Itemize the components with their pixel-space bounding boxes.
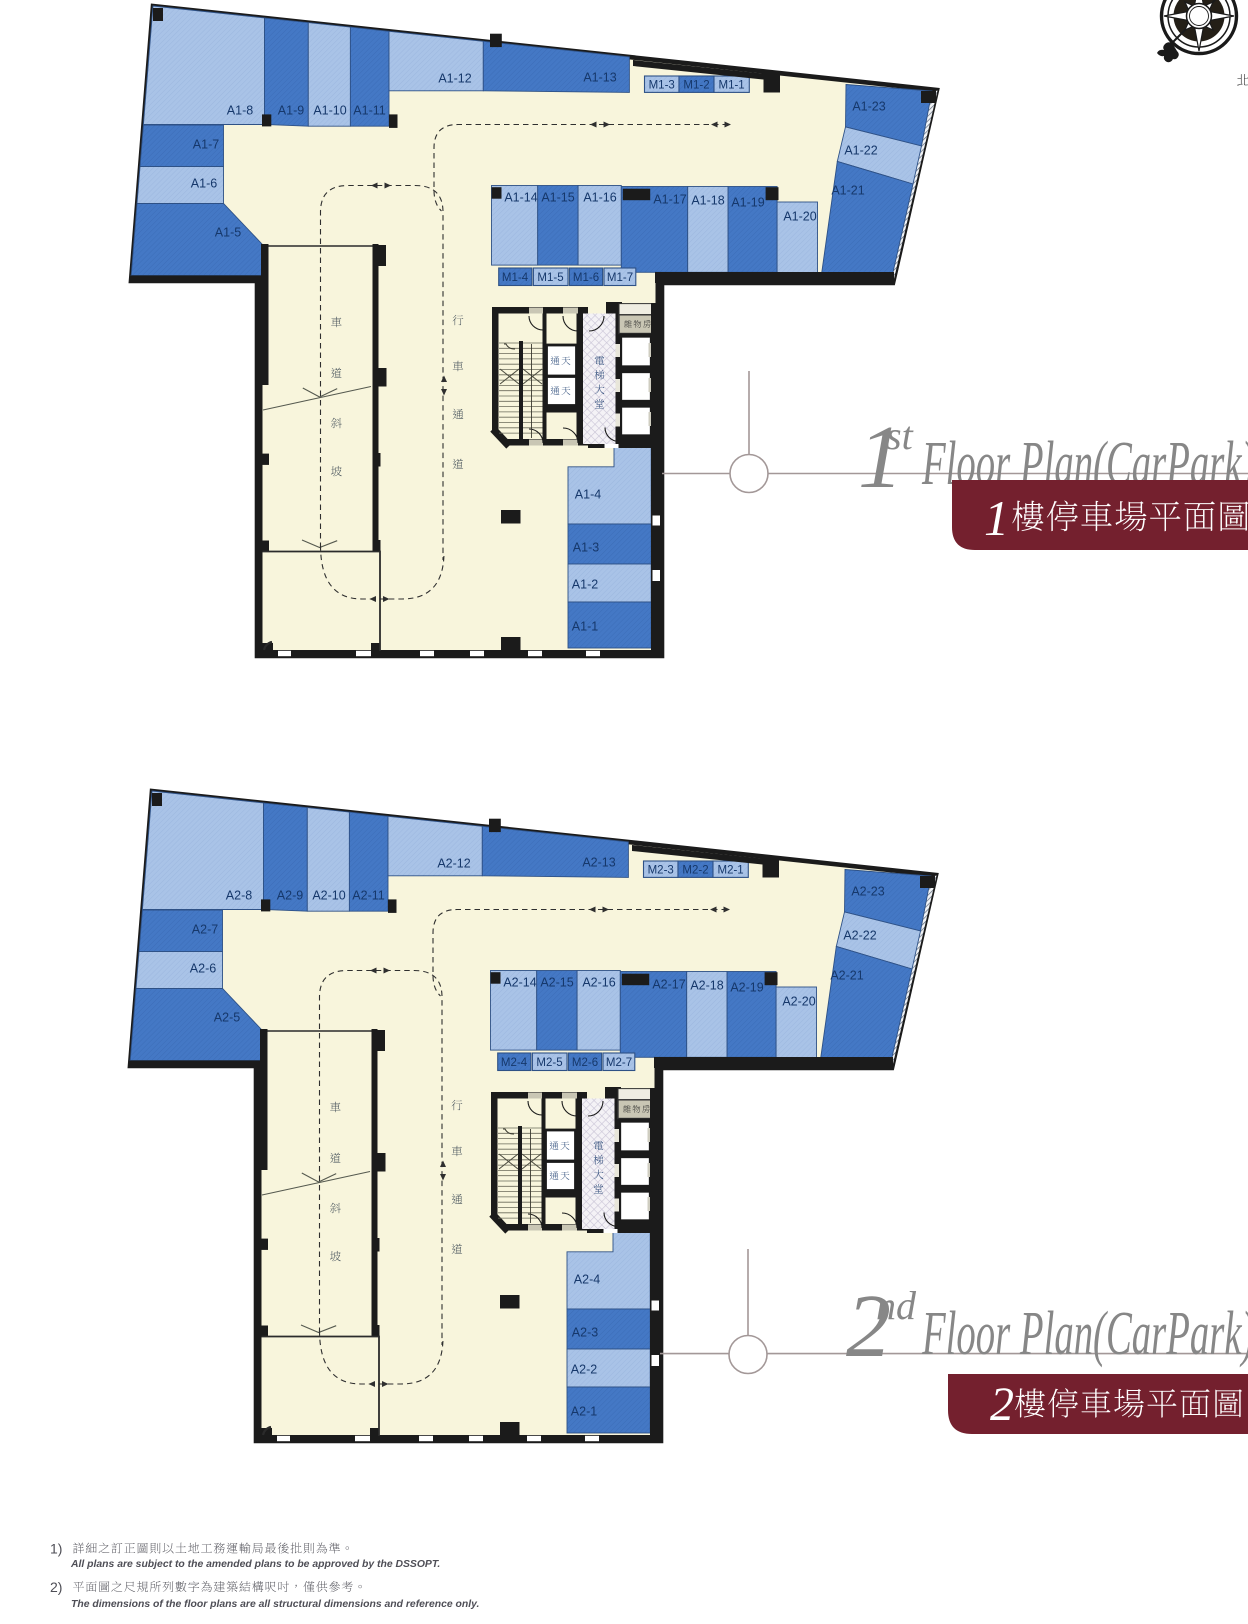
svg-text:A2-15: A2-15 bbox=[540, 976, 573, 990]
svg-text:A1-15: A1-15 bbox=[541, 191, 574, 205]
svg-text:A2-23: A2-23 bbox=[851, 885, 884, 899]
svg-text:A1-19: A1-19 bbox=[731, 196, 764, 210]
svg-text:A2-4: A2-4 bbox=[574, 1273, 600, 1287]
svg-text:A2-10: A2-10 bbox=[312, 889, 345, 903]
svg-text:A2-1: A2-1 bbox=[571, 1405, 597, 1419]
svg-text:M1-5: M1-5 bbox=[537, 272, 563, 284]
svg-text:M2-7: M2-7 bbox=[606, 1057, 632, 1069]
svg-text:A2-22: A2-22 bbox=[843, 929, 876, 943]
svg-text:Floor Plan(CarPark): Floor Plan(CarPark) bbox=[921, 1299, 1248, 1369]
svg-text:M1-1: M1-1 bbox=[718, 79, 744, 91]
svg-text:A1-8: A1-8 bbox=[227, 104, 253, 118]
svg-text:M1-7: M1-7 bbox=[607, 272, 633, 284]
svg-text:A1-13: A1-13 bbox=[583, 71, 616, 85]
svg-text:A1-22: A1-22 bbox=[844, 144, 877, 158]
svg-text:All plans are subject to the a: All plans are subject to the amended pla… bbox=[70, 1559, 440, 1570]
svg-text:M1-2: M1-2 bbox=[683, 79, 709, 91]
svg-text:A2-13: A2-13 bbox=[582, 856, 615, 870]
svg-text:A2-5: A2-5 bbox=[214, 1011, 240, 1025]
svg-text:1: 1 bbox=[984, 490, 1009, 546]
svg-text:A2-20: A2-20 bbox=[782, 995, 815, 1009]
svg-text:The dimensions of the floor pl: The dimensions of the floor plans are al… bbox=[71, 1599, 479, 1610]
svg-text:A2-21: A2-21 bbox=[830, 969, 863, 983]
svg-text:2: 2 bbox=[990, 1378, 1014, 1431]
svg-text:M2-3: M2-3 bbox=[648, 864, 674, 876]
svg-text:A2-17: A2-17 bbox=[652, 978, 685, 992]
svg-text:A1-23: A1-23 bbox=[852, 100, 885, 114]
svg-text:A1-9: A1-9 bbox=[278, 104, 304, 118]
svg-text:A1-12: A1-12 bbox=[438, 72, 471, 86]
svg-text:A2-19: A2-19 bbox=[730, 981, 763, 995]
svg-text:A1-7: A1-7 bbox=[193, 138, 219, 152]
svg-text:A1-6: A1-6 bbox=[191, 177, 217, 191]
svg-text:A1-2: A1-2 bbox=[572, 578, 598, 592]
svg-text:M1-6: M1-6 bbox=[573, 272, 599, 284]
svg-text:A2-12: A2-12 bbox=[437, 857, 470, 871]
svg-text:A1-14: A1-14 bbox=[504, 191, 537, 205]
svg-text:M2-1: M2-1 bbox=[717, 864, 743, 876]
svg-text:A2-7: A2-7 bbox=[192, 923, 218, 937]
svg-text:st: st bbox=[886, 413, 914, 458]
svg-text:A1-11: A1-11 bbox=[353, 104, 385, 118]
svg-text:A1-3: A1-3 bbox=[573, 541, 599, 555]
svg-text:A2-16: A2-16 bbox=[582, 976, 615, 990]
svg-text:A2-18: A2-18 bbox=[690, 979, 723, 993]
svg-text:A1-1: A1-1 bbox=[572, 620, 598, 634]
svg-text:A1-16: A1-16 bbox=[583, 191, 616, 205]
svg-text:M2-6: M2-6 bbox=[572, 1057, 598, 1069]
svg-text:nd: nd bbox=[876, 1283, 917, 1328]
svg-text:A1-10: A1-10 bbox=[313, 104, 346, 118]
svg-text:A2-2: A2-2 bbox=[571, 1363, 597, 1377]
svg-text:A2-3: A2-3 bbox=[572, 1326, 598, 1340]
svg-text:M2-4: M2-4 bbox=[501, 1057, 528, 1069]
svg-text:M2-5: M2-5 bbox=[536, 1057, 562, 1069]
svg-text:2): 2) bbox=[50, 1579, 62, 1595]
svg-text:A1-4: A1-4 bbox=[575, 488, 601, 502]
svg-text:A1-21: A1-21 bbox=[831, 184, 864, 198]
svg-text:A1-18: A1-18 bbox=[691, 194, 724, 208]
svg-text:M2-2: M2-2 bbox=[682, 864, 708, 876]
svg-text:A2-11: A2-11 bbox=[352, 889, 384, 903]
svg-text:A2-8: A2-8 bbox=[226, 889, 252, 903]
svg-text:A2-6: A2-6 bbox=[190, 962, 216, 976]
svg-text:M1-3: M1-3 bbox=[649, 79, 675, 91]
svg-text:M1-4: M1-4 bbox=[502, 272, 529, 284]
svg-text:1): 1) bbox=[50, 1541, 62, 1557]
svg-text:A2-9: A2-9 bbox=[277, 889, 303, 903]
svg-text:A2-14: A2-14 bbox=[503, 976, 536, 990]
svg-text:A1-5: A1-5 bbox=[215, 226, 241, 240]
svg-text:A1-20: A1-20 bbox=[783, 210, 816, 224]
svg-text:A1-17: A1-17 bbox=[653, 193, 686, 207]
